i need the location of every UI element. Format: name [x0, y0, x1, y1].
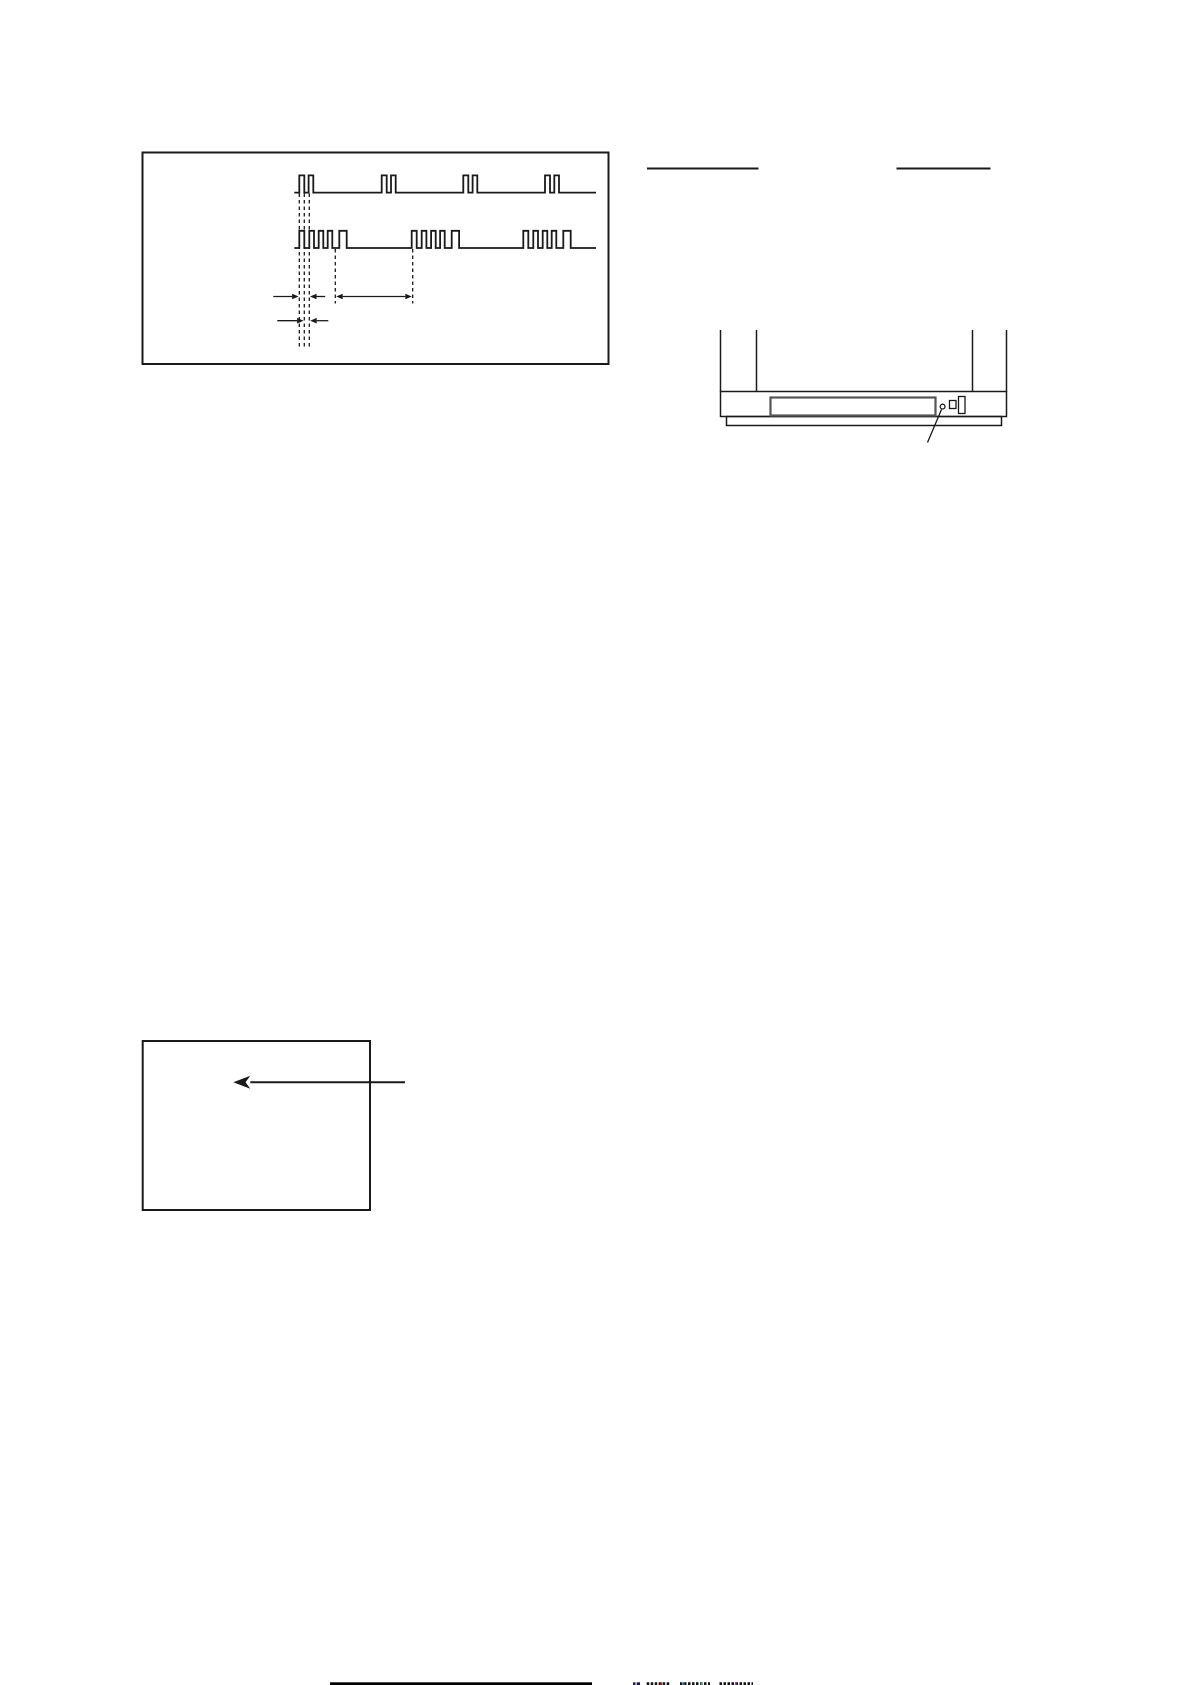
tv-indicator-led: [940, 404, 945, 409]
scanned-manual-page: [0, 0, 1191, 1685]
signal-waveform-bottom: [294, 231, 596, 248]
tv-base: [727, 417, 1002, 426]
line-art-canvas: [0, 0, 1191, 1685]
screen-arrow: [233, 1076, 405, 1089]
tv-button-tall: [959, 397, 966, 414]
measure-arrow-width-right: [310, 318, 328, 324]
tv-front-panel: [721, 392, 1007, 417]
tv-button-small: [950, 401, 957, 409]
measure-arrow-period-left: [273, 294, 298, 300]
signal-waveform-top: [294, 175, 596, 192]
tv-panel-slot: [771, 398, 936, 416]
timing-diagram-frame: [143, 153, 609, 365]
screen-frame: [143, 1041, 370, 1210]
measure-arrow-interval: [336, 294, 412, 300]
measure-arrow-period-right: [310, 294, 325, 300]
